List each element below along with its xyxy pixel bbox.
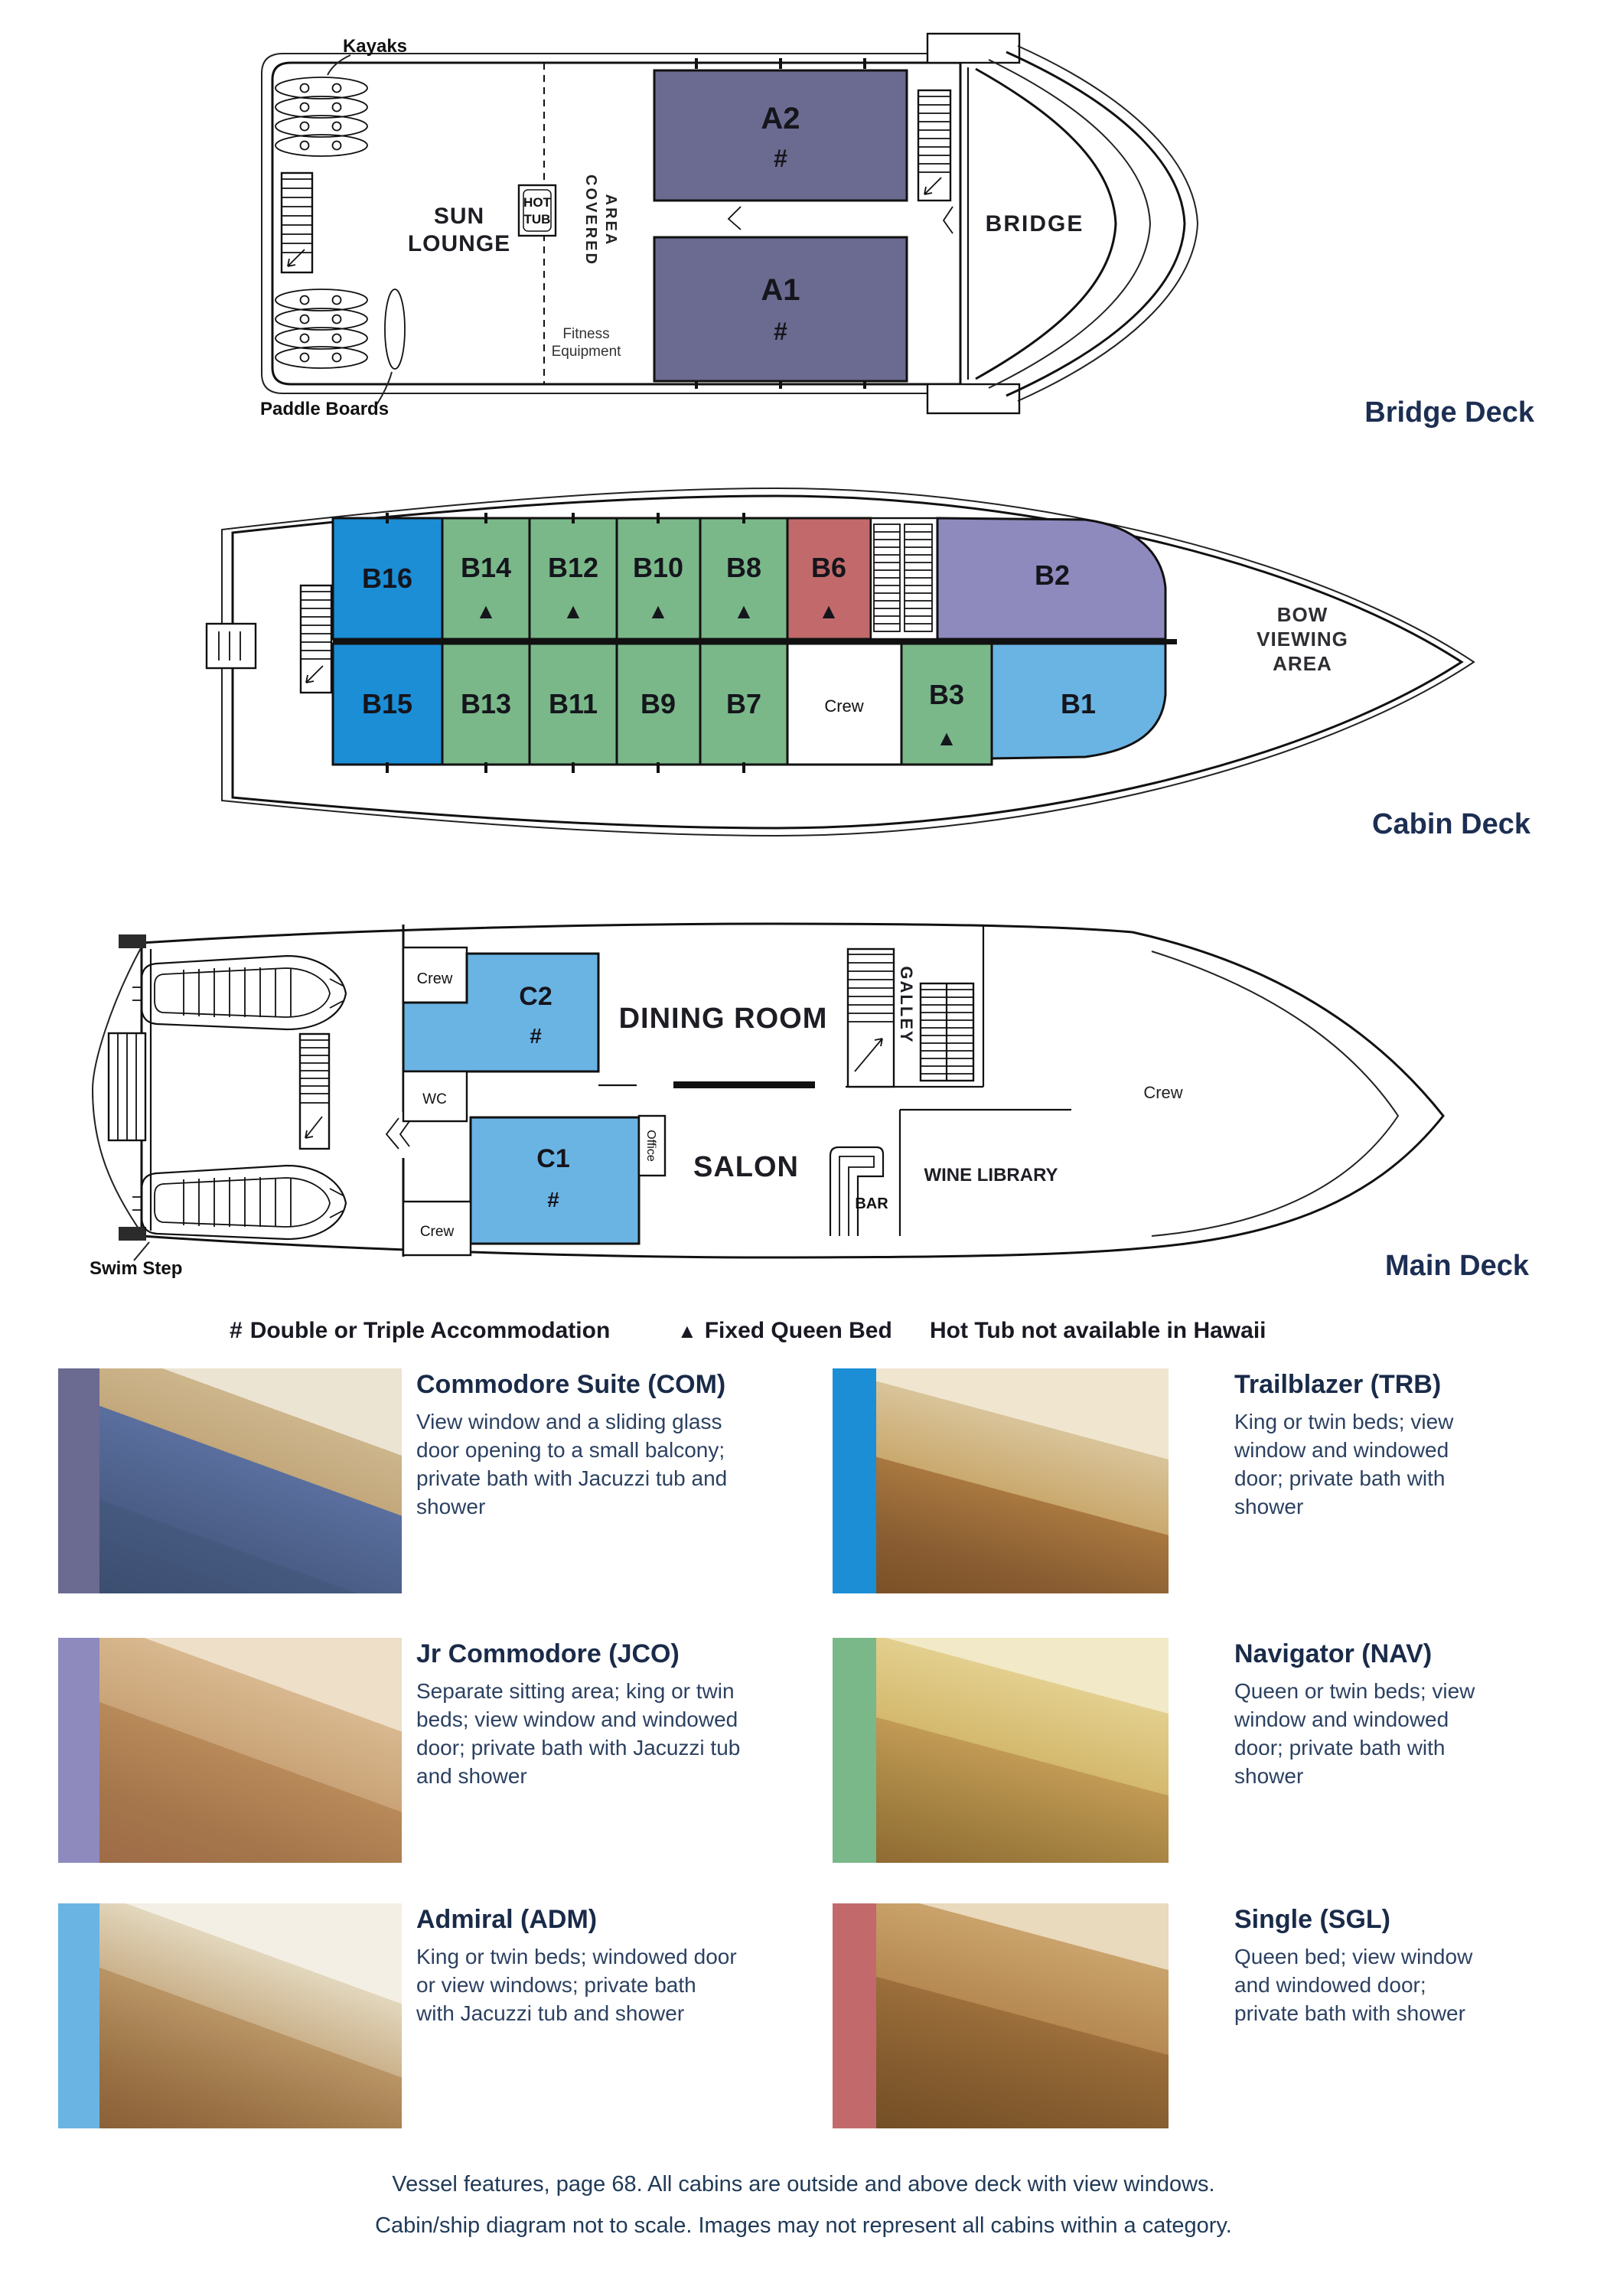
category-description: View window and a sliding glass door ope… [416, 1407, 738, 1521]
midship-stairwell [871, 518, 937, 639]
legend-hot-tub-note: Hot Tub not available in Hawaii [930, 1318, 1266, 1344]
jr-commodore-photo [58, 1638, 402, 1863]
cabin-photo [99, 1638, 402, 1863]
svg-text:B16: B16 [362, 563, 412, 594]
navigator-color-bar [833, 1638, 876, 1863]
footer-note-2: Cabin/ship diagram not to scale. Images … [0, 2213, 1607, 2239]
svg-text:HOT: HOT [523, 195, 552, 210]
commodore-text: Commodore Suite (COM) View window and a … [416, 1370, 814, 1521]
galley-stairs [848, 949, 894, 1087]
category-description: King or twin beds; view window and windo… [1234, 1407, 1495, 1521]
svg-text:#: # [774, 318, 787, 345]
main-hull [93, 924, 1443, 1257]
svg-text:B2: B2 [1035, 559, 1070, 591]
aft-stairs-icon [282, 173, 312, 272]
fitness-label-1: Fitness [562, 326, 609, 342]
bridge-deck-title: Bridge Deck [1364, 396, 1534, 429]
svg-text:B7: B7 [726, 688, 761, 719]
admiral-photo [58, 1903, 402, 2128]
svg-text:▲: ▲ [818, 599, 839, 623]
navigator-text: Navigator (NAV) Queen or twin beds; view… [1234, 1639, 1563, 1790]
svg-text:B1: B1 [1061, 688, 1096, 719]
category-title: Trailblazer (TRB) [1234, 1370, 1563, 1400]
cabin-deck-diagram: B16 B14▲ B12▲ B10▲ B8▲ B6▲ B2 B15 B13 B1… [207, 482, 1477, 850]
cabin-photo [876, 1903, 1169, 2128]
cabin-B3: B3▲ [901, 644, 992, 765]
svg-text:B13: B13 [461, 688, 511, 719]
svg-text:#: # [530, 1024, 542, 1048]
svg-text:B6: B6 [811, 552, 846, 583]
crew-area-label: Crew [1143, 1083, 1182, 1102]
trailblazer-color-bar [833, 1368, 876, 1593]
cabin-B14: B14▲ [442, 518, 530, 639]
svg-text:B10: B10 [633, 552, 683, 583]
cabin-B12: B12▲ [530, 518, 617, 639]
cabin-A1: A1 # [654, 237, 907, 381]
category-title: Jr Commodore (JCO) [416, 1639, 814, 1669]
svg-text:▲: ▲ [733, 599, 755, 623]
cabin-B13: B13 [442, 644, 530, 765]
svg-text:C1: C1 [536, 1144, 569, 1173]
svg-text:TUB: TUB [524, 212, 551, 227]
cabin-B15: B15 [333, 644, 442, 765]
bow-viewing-label-1: BOW [1277, 603, 1328, 626]
aft-deck-stairs [300, 1034, 329, 1149]
deck-plan-page: Kayaks Paddle Boards SUN LOUNGE HOT TUB … [0, 0, 1607, 2296]
cabin-A2: A2 # [654, 70, 907, 201]
cabin-B9: B9 [617, 644, 700, 765]
category-title: Single (SGL) [1234, 1905, 1563, 1935]
swim-step-label: Swim Step [90, 1258, 182, 1279]
cabin-deck-title: Cabin Deck [1372, 808, 1530, 841]
stern-winch-bottom [119, 1227, 146, 1241]
svg-text:A2: A2 [761, 102, 800, 135]
sun-lounge-label-1: SUN [434, 204, 484, 229]
svg-text:▲: ▲ [562, 599, 584, 623]
dining-room-label: DINING ROOM [619, 1003, 828, 1035]
svg-text:#: # [774, 145, 787, 172]
hot-tub: HOT TUB [519, 185, 556, 236]
svg-text:B12: B12 [548, 552, 598, 583]
single-text: Single (SGL) Queen bed; view window and … [1234, 1905, 1563, 2027]
salon-label: SALON [693, 1151, 799, 1183]
svg-text:B8: B8 [726, 552, 761, 583]
commodore-color-bar [58, 1368, 99, 1593]
single-photo [833, 1903, 1169, 2128]
cabin-C1: C1 # [471, 1117, 639, 1244]
bridge-deck-diagram: Kayaks Paddle Boards SUN LOUNGE HOT TUB … [260, 23, 1224, 444]
forward-stairs-icon [918, 90, 950, 201]
category-description: King or twin beds; windowed door or view… [416, 1942, 738, 2027]
bar-label: BAR [855, 1195, 888, 1212]
crew-room-lower: Crew [403, 1202, 471, 1255]
bridge-wing-bottom [927, 384, 1019, 413]
cabin-B11: B11 [530, 644, 617, 765]
covered-area-label-2: AREA [602, 194, 619, 247]
stern-ladder-platform [207, 624, 256, 668]
bridge-room-label: BRIDGE [986, 211, 1084, 236]
sun-lounge-label-2: LOUNGE [408, 231, 510, 256]
svg-text:Crew: Crew [417, 970, 453, 987]
svg-text:▲: ▲ [647, 599, 669, 623]
legend-fixed-queen: ▲Fixed Queen Bed [677, 1318, 892, 1344]
cabin-photo [876, 1638, 1169, 1863]
svg-text:B9: B9 [641, 688, 676, 719]
wc-room: WC [403, 1071, 467, 1121]
cabin-B16: B16 [333, 518, 442, 639]
cabin-B8: B8▲ [700, 518, 787, 639]
cabin-photo [99, 1368, 402, 1593]
cabin-B7: B7 [700, 644, 787, 765]
svg-text:B14: B14 [461, 552, 511, 583]
galley-label: GALLEY [897, 966, 916, 1043]
paddle-boards-label: Paddle Boards [260, 399, 389, 419]
admiral-color-bar [58, 1903, 99, 2128]
svg-text:#: # [547, 1188, 559, 1212]
trailblazer-text: Trailblazer (TRB) King or twin beds; vie… [1234, 1370, 1563, 1521]
svg-text:Crew: Crew [420, 1224, 455, 1240]
kayaks-label: Kayaks [343, 36, 407, 57]
svg-text:A1: A1 [761, 273, 800, 307]
legend-double-triple: #Double or Triple Accommodation [230, 1318, 610, 1344]
svg-text:▲: ▲ [936, 726, 957, 750]
bridge-wing-top [927, 34, 1019, 63]
category-description: Queen or twin beds; view window and wind… [1234, 1677, 1495, 1790]
stern-winch-top [119, 934, 146, 948]
crew-room-top: Crew [403, 947, 467, 1003]
cabin-deck-stairs [301, 585, 331, 693]
cabin-photo [99, 1903, 402, 2128]
foyer-stairs [921, 983, 973, 1081]
cabin-B10: B10▲ [617, 518, 700, 639]
commodore-photo [58, 1368, 402, 1593]
category-description: Queen bed; view window and windowed door… [1234, 1942, 1495, 2027]
covered-area-label-1: COVERED [582, 174, 599, 266]
main-deck-diagram: Crew C2 # WC C1 # Crew Office DINING ROO… [42, 915, 1477, 1309]
category-title: Commodore Suite (COM) [416, 1370, 814, 1400]
cabin-photo [876, 1368, 1169, 1593]
category-description: Separate sitting area; king or twin beds… [416, 1677, 745, 1790]
cabin-B6: B6▲ [787, 518, 871, 639]
wine-library-label: WINE LIBRARY [924, 1165, 1058, 1186]
svg-text:▲: ▲ [475, 599, 497, 623]
svg-text:B11: B11 [549, 688, 598, 719]
category-title: Admiral (ADM) [416, 1905, 814, 1935]
office-label: Office [644, 1130, 657, 1162]
single-color-bar [833, 1903, 876, 2128]
office-room: Office [639, 1116, 665, 1176]
jr-commodore-color-bar [58, 1638, 99, 1863]
bow-viewing-label-3: AREA [1273, 652, 1332, 675]
gear-rack [109, 1033, 145, 1140]
bow-viewing-label-2: VIEWING [1257, 628, 1348, 651]
svg-text:B15: B15 [362, 688, 412, 719]
main-deck-title: Main Deck [1385, 1250, 1529, 1283]
svg-text:Crew: Crew [824, 696, 863, 716]
crew-cabin-cell: Crew [787, 644, 901, 765]
triangle-symbol: ▲ [677, 1319, 697, 1342]
footer-note-1: Vessel features, page 68. All cabins are… [0, 2172, 1607, 2197]
admiral-text: Admiral (ADM) King or twin beds; windowe… [416, 1905, 814, 2027]
navigator-photo [833, 1638, 1169, 1863]
category-title: Navigator (NAV) [1234, 1639, 1563, 1669]
svg-text:C2: C2 [519, 982, 552, 1011]
fitness-label-2: Equipment [552, 344, 622, 360]
trailblazer-photo [833, 1368, 1169, 1593]
cabin-B2: B2 [937, 518, 1165, 639]
hash-symbol: # [230, 1318, 243, 1343]
svg-text:B3: B3 [929, 679, 964, 710]
jr-commodore-text: Jr Commodore (JCO) Separate sitting area… [416, 1639, 814, 1790]
svg-text:WC: WC [422, 1091, 447, 1107]
